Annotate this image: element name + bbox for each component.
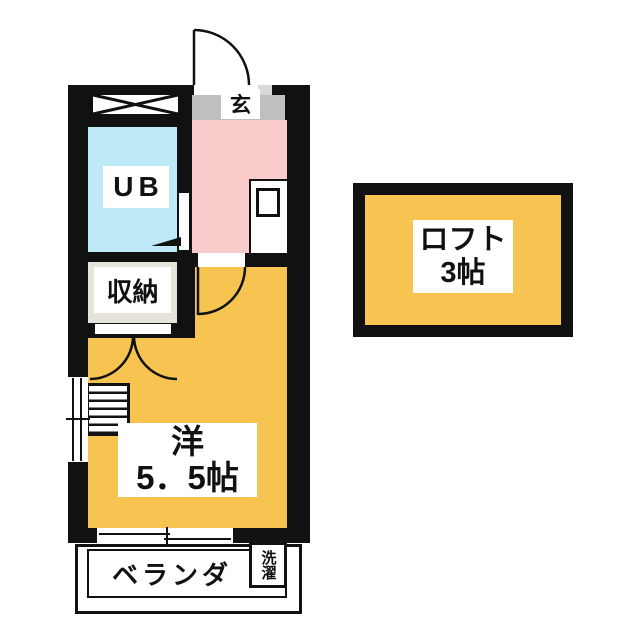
laundry-box: 洗濯 [249,542,287,588]
storage-label: 収納 [94,267,171,313]
laundry-label: 洗濯 [261,550,276,580]
interior-door-opening [198,253,245,267]
kitchen-sink-icon [256,188,280,217]
pipe-space-box [90,92,181,117]
western-room-size: 5．5帖 [136,460,239,496]
entrance-door-icon [194,30,249,85]
entrance-label: 玄 [221,89,260,119]
floor-plan: 玄 UB 収納 洋 5．5帖 ベランダ 洗濯 ロフト 3帖 [0,0,640,640]
sliding-window-icon [97,528,233,543]
room-western-upper [195,267,287,338]
balcony-label: ベランダ [87,549,257,598]
loft-size: 3帖 [440,257,485,290]
loft-label: ロフト 3帖 [413,220,513,293]
unit-bath-door-opening [179,193,189,250]
side-window-icon [68,377,88,462]
unit-bath-label: UB [103,166,169,208]
loft-name: ロフト [419,224,506,257]
closet-door-closed [95,324,171,334]
western-room-label: 洋 5．5帖 [118,423,257,497]
western-room-name: 洋 [171,424,204,460]
